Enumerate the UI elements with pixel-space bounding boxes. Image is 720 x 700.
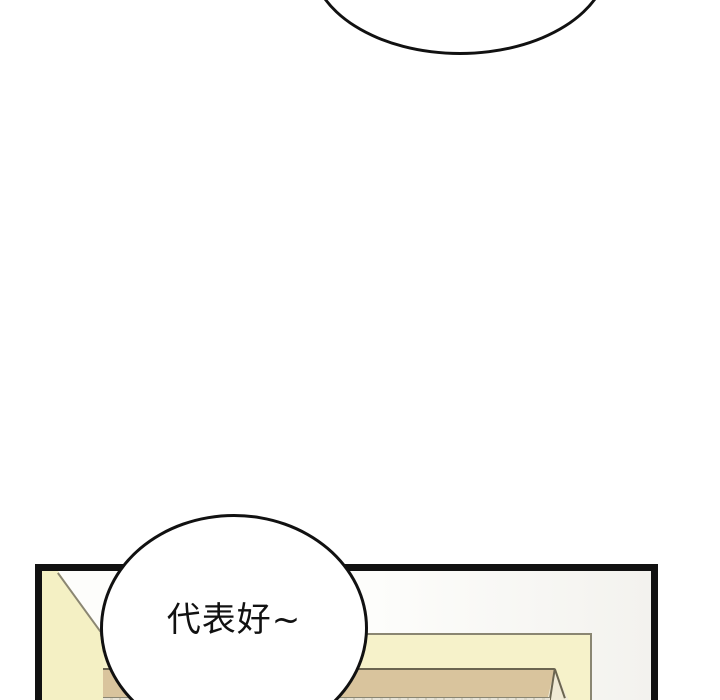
speech-bubble: 代表好~ <box>100 514 368 700</box>
comic-page: 代表好~ <box>0 0 720 700</box>
speech-text: 代表好~ <box>167 592 302 641</box>
speech-bubble-top-partial <box>310 0 610 55</box>
